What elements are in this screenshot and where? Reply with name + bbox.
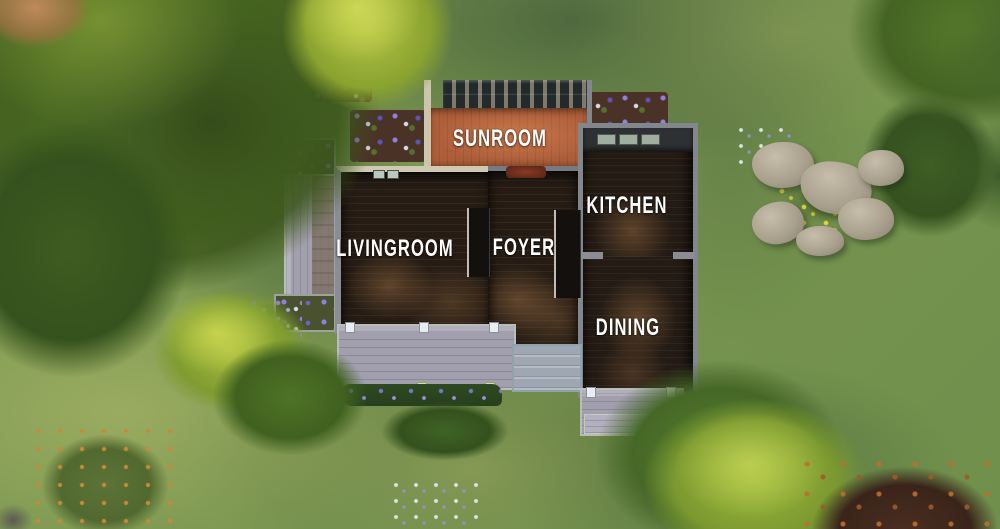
window-icon — [373, 170, 385, 179]
porch-post — [419, 322, 429, 333]
lavender-patch — [246, 298, 302, 348]
small-rock — [0, 500, 38, 529]
flower-bed — [350, 110, 426, 162]
entry-table — [506, 166, 546, 178]
bush — [370, 396, 520, 466]
deck-steps[interactable] — [584, 414, 682, 434]
boulder — [838, 198, 894, 240]
flower-bed — [300, 58, 372, 102]
label-dining: DINING — [596, 313, 660, 342]
boulder — [858, 150, 904, 186]
door-livingroom-foyer[interactable] — [467, 208, 490, 277]
floorplan-screenshot: SUNROOM KITCHEN LIVINGROOM FOYER DINING — [0, 0, 1000, 529]
label-foyer: FOYER — [493, 233, 555, 262]
room-kitchen-dining-wing[interactable] — [578, 123, 698, 398]
porch-post — [489, 322, 499, 333]
window-icon — [597, 134, 616, 145]
tree-canopy-autumn — [795, 455, 1000, 529]
deck-post — [666, 387, 676, 398]
wall-stub — [581, 252, 603, 259]
label-livingroom: LIVINGROOM — [336, 234, 454, 263]
wildflower-specks — [390, 480, 480, 525]
porch-steps[interactable] — [512, 344, 582, 392]
deck-post — [586, 387, 596, 398]
front-porch[interactable] — [337, 324, 516, 390]
wall-stub — [673, 252, 695, 259]
door-foyer-kitchen[interactable] — [554, 210, 581, 298]
tree-canopy-autumn — [0, 0, 100, 55]
wildflower-specks — [740, 428, 810, 473]
porch-fence — [312, 172, 334, 296]
window-icon — [619, 134, 638, 145]
porch-post — [345, 322, 355, 333]
groundcover-flowers — [30, 425, 180, 529]
tree-canopy — [0, 100, 210, 400]
planter-box[interactable] — [278, 138, 336, 176]
sunroom-window-wall — [443, 80, 587, 108]
window-icon — [387, 170, 399, 179]
kitchen-window-wall — [583, 128, 693, 152]
boulder — [796, 226, 844, 256]
window-icon — [641, 134, 660, 145]
label-kitchen: KITCHEN — [586, 191, 667, 220]
label-sunroom: SUNROOM — [453, 124, 547, 153]
hedge-with-flowers — [342, 384, 502, 406]
